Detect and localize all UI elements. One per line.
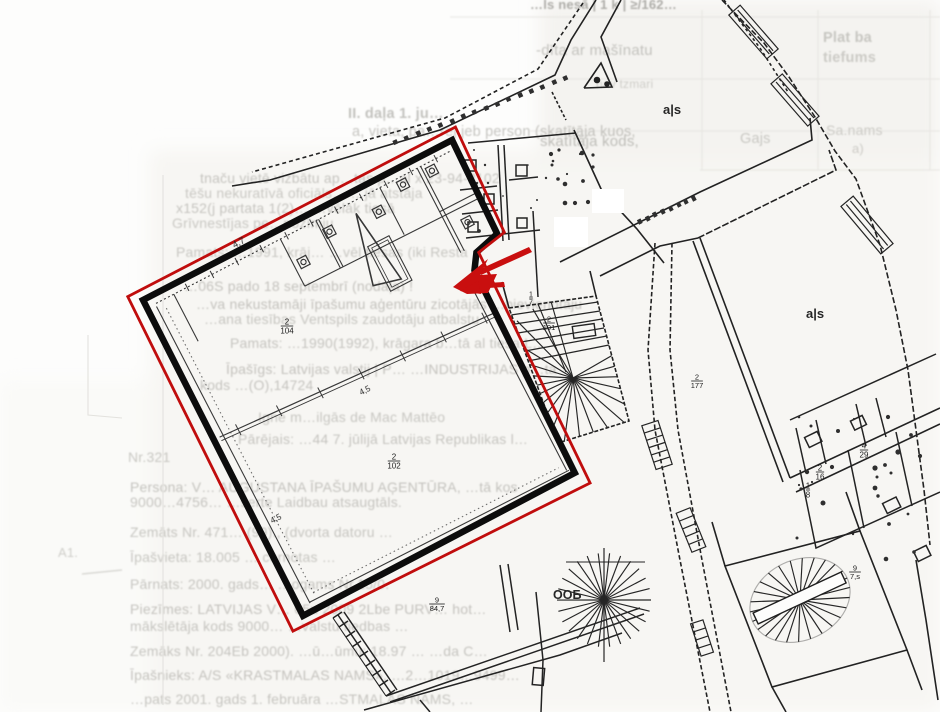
- svg-text:84,7: 84,7: [430, 604, 445, 613]
- svg-text:2: 2: [392, 453, 397, 462]
- svg-text:Persona: V… AUGUSTANA ĪPAŠUMU: Persona: V… AUGUSTANA ĪPAŠUMU AĢENTŪRA, …: [130, 479, 518, 495]
- svg-text:Pārējais: …44 7. jūlijā Latvij: Pārējais: …44 7. jūlijā Latvijas Republi…: [238, 431, 528, 447]
- svg-text:Sa.nams: Sa.nams: [826, 122, 883, 138]
- svg-text:7,s: 7,s: [850, 572, 860, 581]
- svg-text:-dīta ar mašīnatu: -dīta ar mašīnatu: [536, 42, 653, 59]
- svg-text:102: 102: [387, 462, 401, 471]
- svg-text:Īpašvieta: 18.005 … cernotas: Īpašvieta: 18.005 … cernotas …: [130, 549, 336, 565]
- svg-text:…06S pado 18 septembrī (nodaļ: …06S pado 18 septembrī (nodaļa) !: [184, 278, 413, 294]
- svg-text:16: 16: [816, 473, 825, 482]
- svg-text:29: 29: [860, 451, 869, 460]
- svg-text:2: 2: [818, 464, 823, 473]
- svg-text:Gajs: Gajs: [740, 131, 771, 147]
- svg-text:…ana tiesības Ventspils zaudot: …ana tiesības Ventspils zaudotāju atbals…: [204, 311, 479, 327]
- svg-text:Pamats: …1990(1992), krāgara: Pamats: …1990(1992), krāgara b…tā al tie…: [230, 335, 546, 351]
- svg-text:177: 177: [691, 381, 704, 390]
- svg-text:8: 8: [806, 491, 811, 500]
- svg-text:ООБ: ООБ: [553, 588, 581, 602]
- svg-text:104: 104: [280, 327, 294, 336]
- svg-text:…va nekustamāji īpašumu aģentū: …va nekustamāji īpašumu aģentūru zicotāj…: [196, 296, 582, 312]
- svg-text:tiefums: tiefums: [823, 50, 876, 66]
- svg-text:…ls nesā | 1 k | ≥/162…: …ls nesā | 1 k | ≥/162…: [530, 0, 677, 12]
- svg-text:9000…4756… …šerte Laidbau at: 9000…4756… …šerte Laidbau atsaugtāls.: [130, 494, 402, 510]
- svg-text:a|s: a|s: [806, 306, 824, 321]
- svg-text:kods …(O),14724: kods …(O),14724: [200, 377, 314, 393]
- svg-text:1: 1: [529, 292, 533, 299]
- svg-text:Zemāks Nr. 204Eb 2000). …ū…ūm: Zemāks Nr. 204Eb 2000). …ū…ūmu: 18.97 … …: [130, 643, 488, 659]
- svg-text:II. daļa 1. ju…: II. daļa 1. ju…: [348, 106, 444, 122]
- svg-text:Nr.321: Nr.321: [128, 449, 170, 465]
- svg-text:7: 7: [529, 300, 533, 307]
- svg-text:Plat ba: Plat ba: [823, 30, 873, 46]
- svg-text:1: 1: [806, 482, 811, 491]
- svg-text:2: 2: [285, 318, 290, 327]
- svg-text:a): a): [852, 141, 864, 156]
- svg-text:4: 4: [862, 442, 867, 451]
- svg-text:a|s: a|s: [663, 102, 681, 117]
- svg-text:101: 101: [543, 323, 556, 332]
- svg-text:A1.: A1.: [58, 545, 78, 560]
- svg-text:mākslētāja kods 9000… …valst: mākslētāja kods 9000… …valstu fiedbas …: [130, 618, 409, 634]
